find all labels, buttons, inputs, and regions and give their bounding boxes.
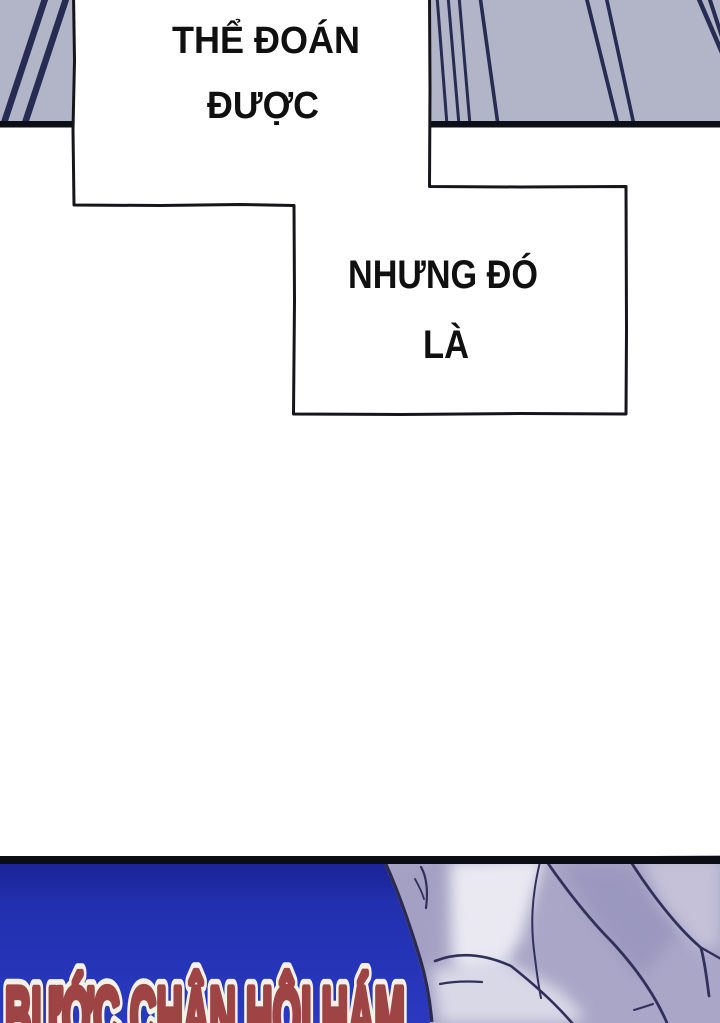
svg-text:NHƯNG ĐÓ: NHƯNG ĐÓ (348, 251, 538, 297)
svg-text:THỂ ĐOÁN: THỂ ĐOÁN (172, 17, 360, 62)
svg-text:LÀ: LÀ (423, 322, 469, 367)
svg-text:ĐƯỢC: ĐƯỢC (207, 85, 319, 127)
svg-text:BƯỚC CHÂN HÔI HÁM: BƯỚC CHÂN HÔI HÁM (5, 971, 405, 1023)
